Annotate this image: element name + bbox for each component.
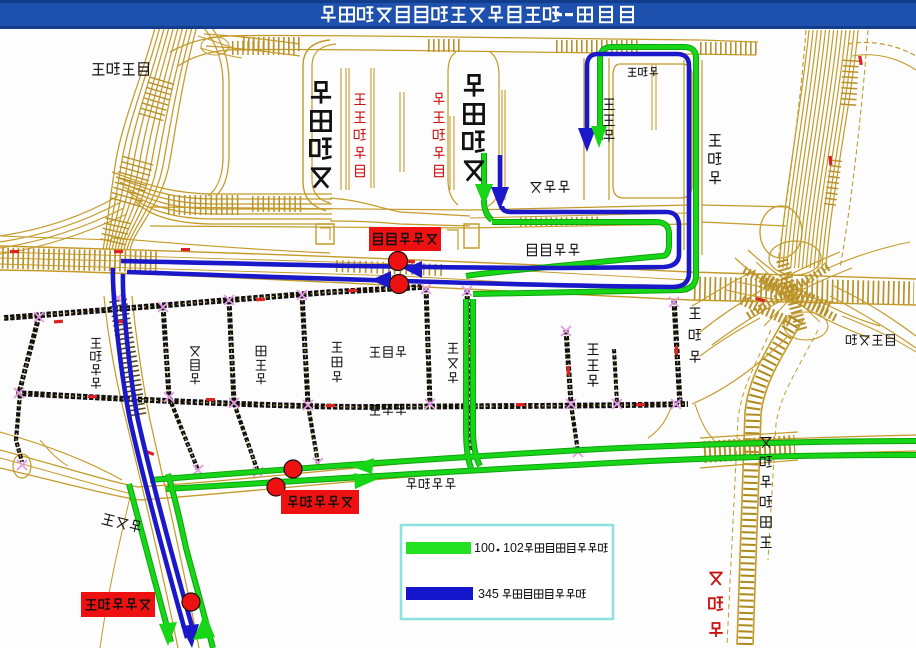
svg-text:102: 102 [503, 541, 524, 555]
svg-text:345: 345 [478, 587, 499, 601]
svg-text:100: 100 [474, 541, 495, 555]
